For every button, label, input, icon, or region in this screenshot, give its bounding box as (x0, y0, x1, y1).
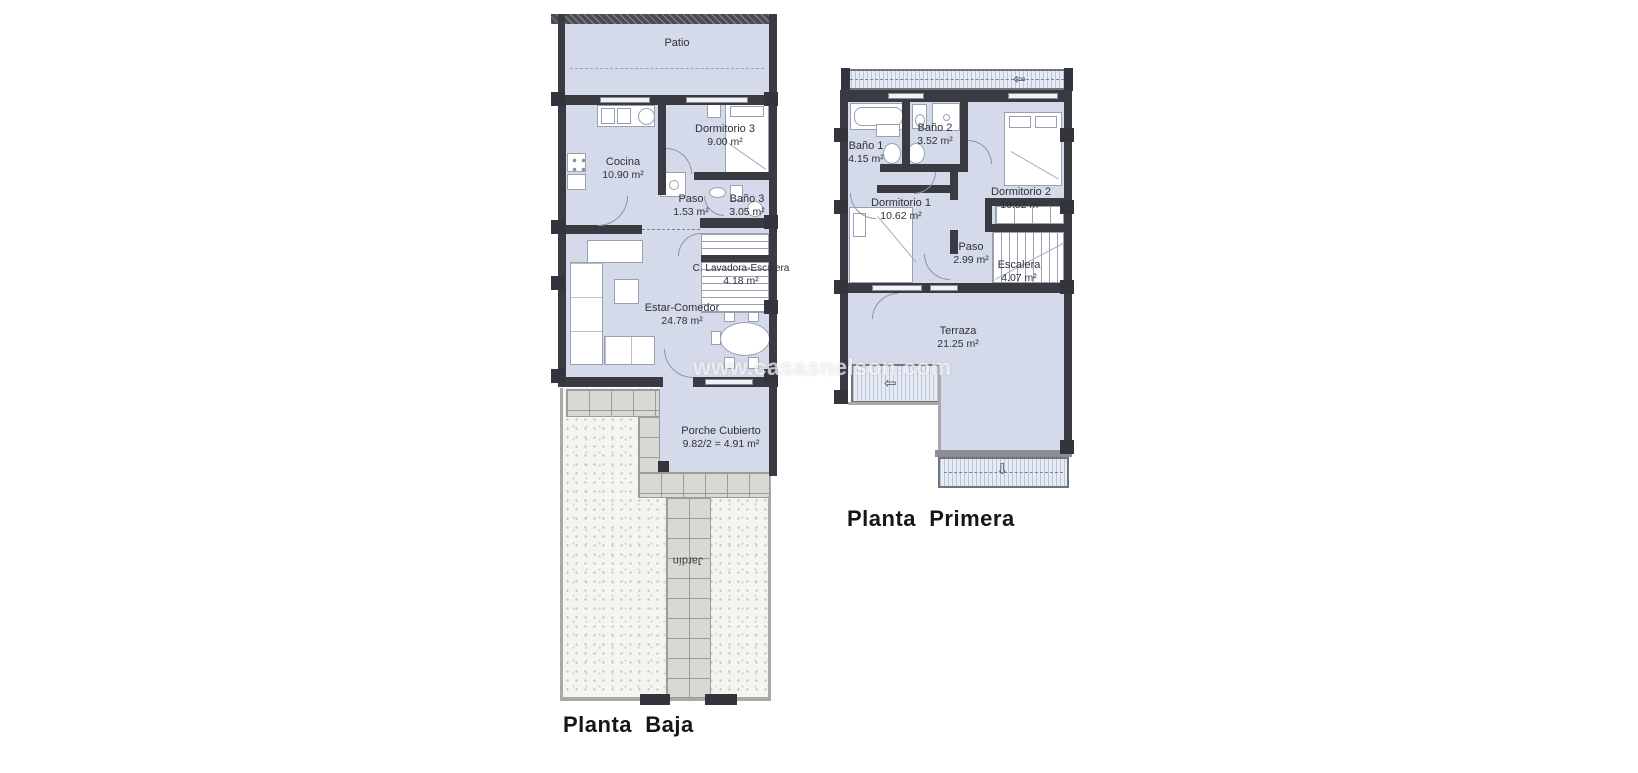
label-dormitorio-1: Dormitorio 1 10.62 m² (841, 196, 961, 224)
wall-closet-bottom (985, 224, 1064, 232)
roof-cap-left (841, 68, 850, 91)
stairs-top-wall (701, 255, 769, 262)
label-patio: Patio (617, 36, 737, 50)
label-dormitorio-2: Dormitorio 2 10.82 m² (961, 185, 1081, 213)
label-terraza: Terraza 21.25 m² (898, 324, 1018, 352)
roof-arrow-icon-top: ⇦ (1013, 72, 1026, 87)
patio-dashed-line (570, 68, 764, 69)
patio-right-wall (769, 14, 777, 95)
room-name: Dormitorio 1 (841, 196, 961, 210)
wall-paso-vertical-upper (950, 164, 958, 200)
sofa-main (570, 262, 603, 365)
kitchen-sink-2 (617, 108, 631, 124)
patio-floor (565, 24, 769, 95)
room-area: 3.05 m² (687, 206, 807, 220)
gf-kitchen-window (600, 97, 650, 103)
porche-pier (658, 461, 669, 472)
bed-dormitorio-2 (1004, 112, 1062, 186)
room-name: Escalera (959, 258, 1079, 272)
room-name: Dormitorio 3 (665, 122, 785, 136)
room-name: Estar-Comedor (622, 301, 742, 315)
ff-terraza-door-2 (930, 285, 958, 291)
room-area: 4.15 m² (806, 153, 926, 167)
tile-band-porch-bottom (638, 472, 770, 498)
room-area: 4.18 m² (676, 275, 806, 289)
pier (764, 92, 778, 106)
room-area: 21.25 m² (898, 338, 1018, 352)
sideboard (587, 240, 643, 263)
pier (834, 280, 848, 294)
room-area: 4.07 m² (959, 272, 1079, 286)
room-name: Paso (911, 240, 1031, 254)
bed-fold-line (1011, 151, 1059, 179)
room-area: 9.00 m² (665, 136, 785, 150)
pier (551, 276, 565, 290)
garden-bottom-stub-right (705, 694, 737, 705)
gf-left-wall (558, 95, 566, 386)
pier (551, 92, 565, 106)
watermark: www.casasnelson.com (693, 354, 952, 381)
wall-mid-left (566, 225, 642, 234)
garden-bottom-stub-left (640, 694, 670, 705)
ff-terraza-door-1 (872, 285, 922, 291)
label-bano-3: Baño 3 3.05 m² (687, 192, 807, 220)
room-name: Patio (617, 36, 737, 50)
room-name: Porche Cubierto (661, 424, 781, 438)
room-area: 10.90 m² (563, 169, 683, 183)
patio-left-wall (558, 14, 565, 95)
label-lavadora-escalera: C. Lavadora-Escalera 4.18 m² (676, 262, 806, 289)
label-dormitorio-3: Dormitorio 3 9.00 m² (665, 122, 785, 150)
pillow (730, 106, 764, 117)
terraza-inset-bottom-edge (848, 402, 941, 405)
garden-left-border (560, 388, 563, 700)
ff-window-1 (888, 93, 924, 99)
nightstand-dormitorio-3 (707, 104, 721, 118)
wall-mid-dashed-opening (642, 229, 700, 230)
first-floor-title: Planta Primera (847, 506, 1015, 532)
wall-dorm3-bano3 (694, 172, 769, 180)
roof-arrow-icon-bottom: ⇩ (996, 462, 1009, 477)
room-area: 3.52 m² (875, 135, 995, 149)
ff-window-2 (1008, 93, 1058, 99)
shower-drain (943, 114, 950, 121)
room-area: 10.82 m² (961, 199, 1081, 213)
gf-dorm3-window (686, 97, 748, 103)
pier (834, 390, 848, 404)
terraza-floor-lower (940, 366, 1064, 452)
room-name: Baño 3 (687, 192, 807, 206)
room-area: 9.82/2 = 4.91 m² (661, 438, 781, 452)
label-escalera: Escalera 4.07 m² (959, 258, 1079, 286)
label-estar-comedor: Estar-Comedor 24.78 m² (622, 301, 742, 329)
pier (764, 300, 778, 314)
pier (551, 369, 565, 383)
terraza-bottom-wall (935, 450, 1072, 457)
room-name: Baño 2 (875, 121, 995, 135)
room-name: C. Lavadora-Escalera (676, 262, 806, 275)
tile-column-porch-left (638, 416, 660, 473)
kitchen-sink (601, 108, 615, 124)
kitchen-round-basin (638, 108, 655, 125)
label-cocina: Cocina 10.90 m² (563, 155, 683, 183)
pier (551, 220, 565, 234)
roof-eave-top-dashed (850, 79, 1064, 80)
ground-floor-title: Planta Baja (563, 712, 694, 738)
roof-cap-right (1064, 68, 1073, 91)
pillow (1035, 116, 1057, 128)
dining-chair (711, 331, 721, 345)
sofa-second (604, 336, 655, 365)
room-name: Jardín (658, 553, 718, 567)
room-area: 10.62 m² (841, 210, 961, 224)
pier (1060, 128, 1074, 142)
room-area: 24.78 m² (622, 315, 742, 329)
tile-band-top (566, 389, 660, 417)
pier (1060, 440, 1074, 454)
label-porche: Porche Cubierto 9.82/2 = 4.91 m² (661, 424, 781, 452)
room-name: Terraza (898, 324, 1018, 338)
room-name: Dormitorio 2 (961, 185, 1081, 199)
pillow (1009, 116, 1031, 128)
label-bano-2: Baño 2 3.52 m² (875, 121, 995, 149)
gf-entrance-opening (663, 377, 693, 387)
garden-path (666, 497, 711, 698)
floorplan-page: Patio Cocina 10.90 m² Dormitorio 3 9.00 … (0, 0, 1638, 773)
patio-top-wall (551, 14, 777, 24)
label-jardin: Jardín (658, 553, 718, 567)
room-name: Cocina (563, 155, 683, 169)
